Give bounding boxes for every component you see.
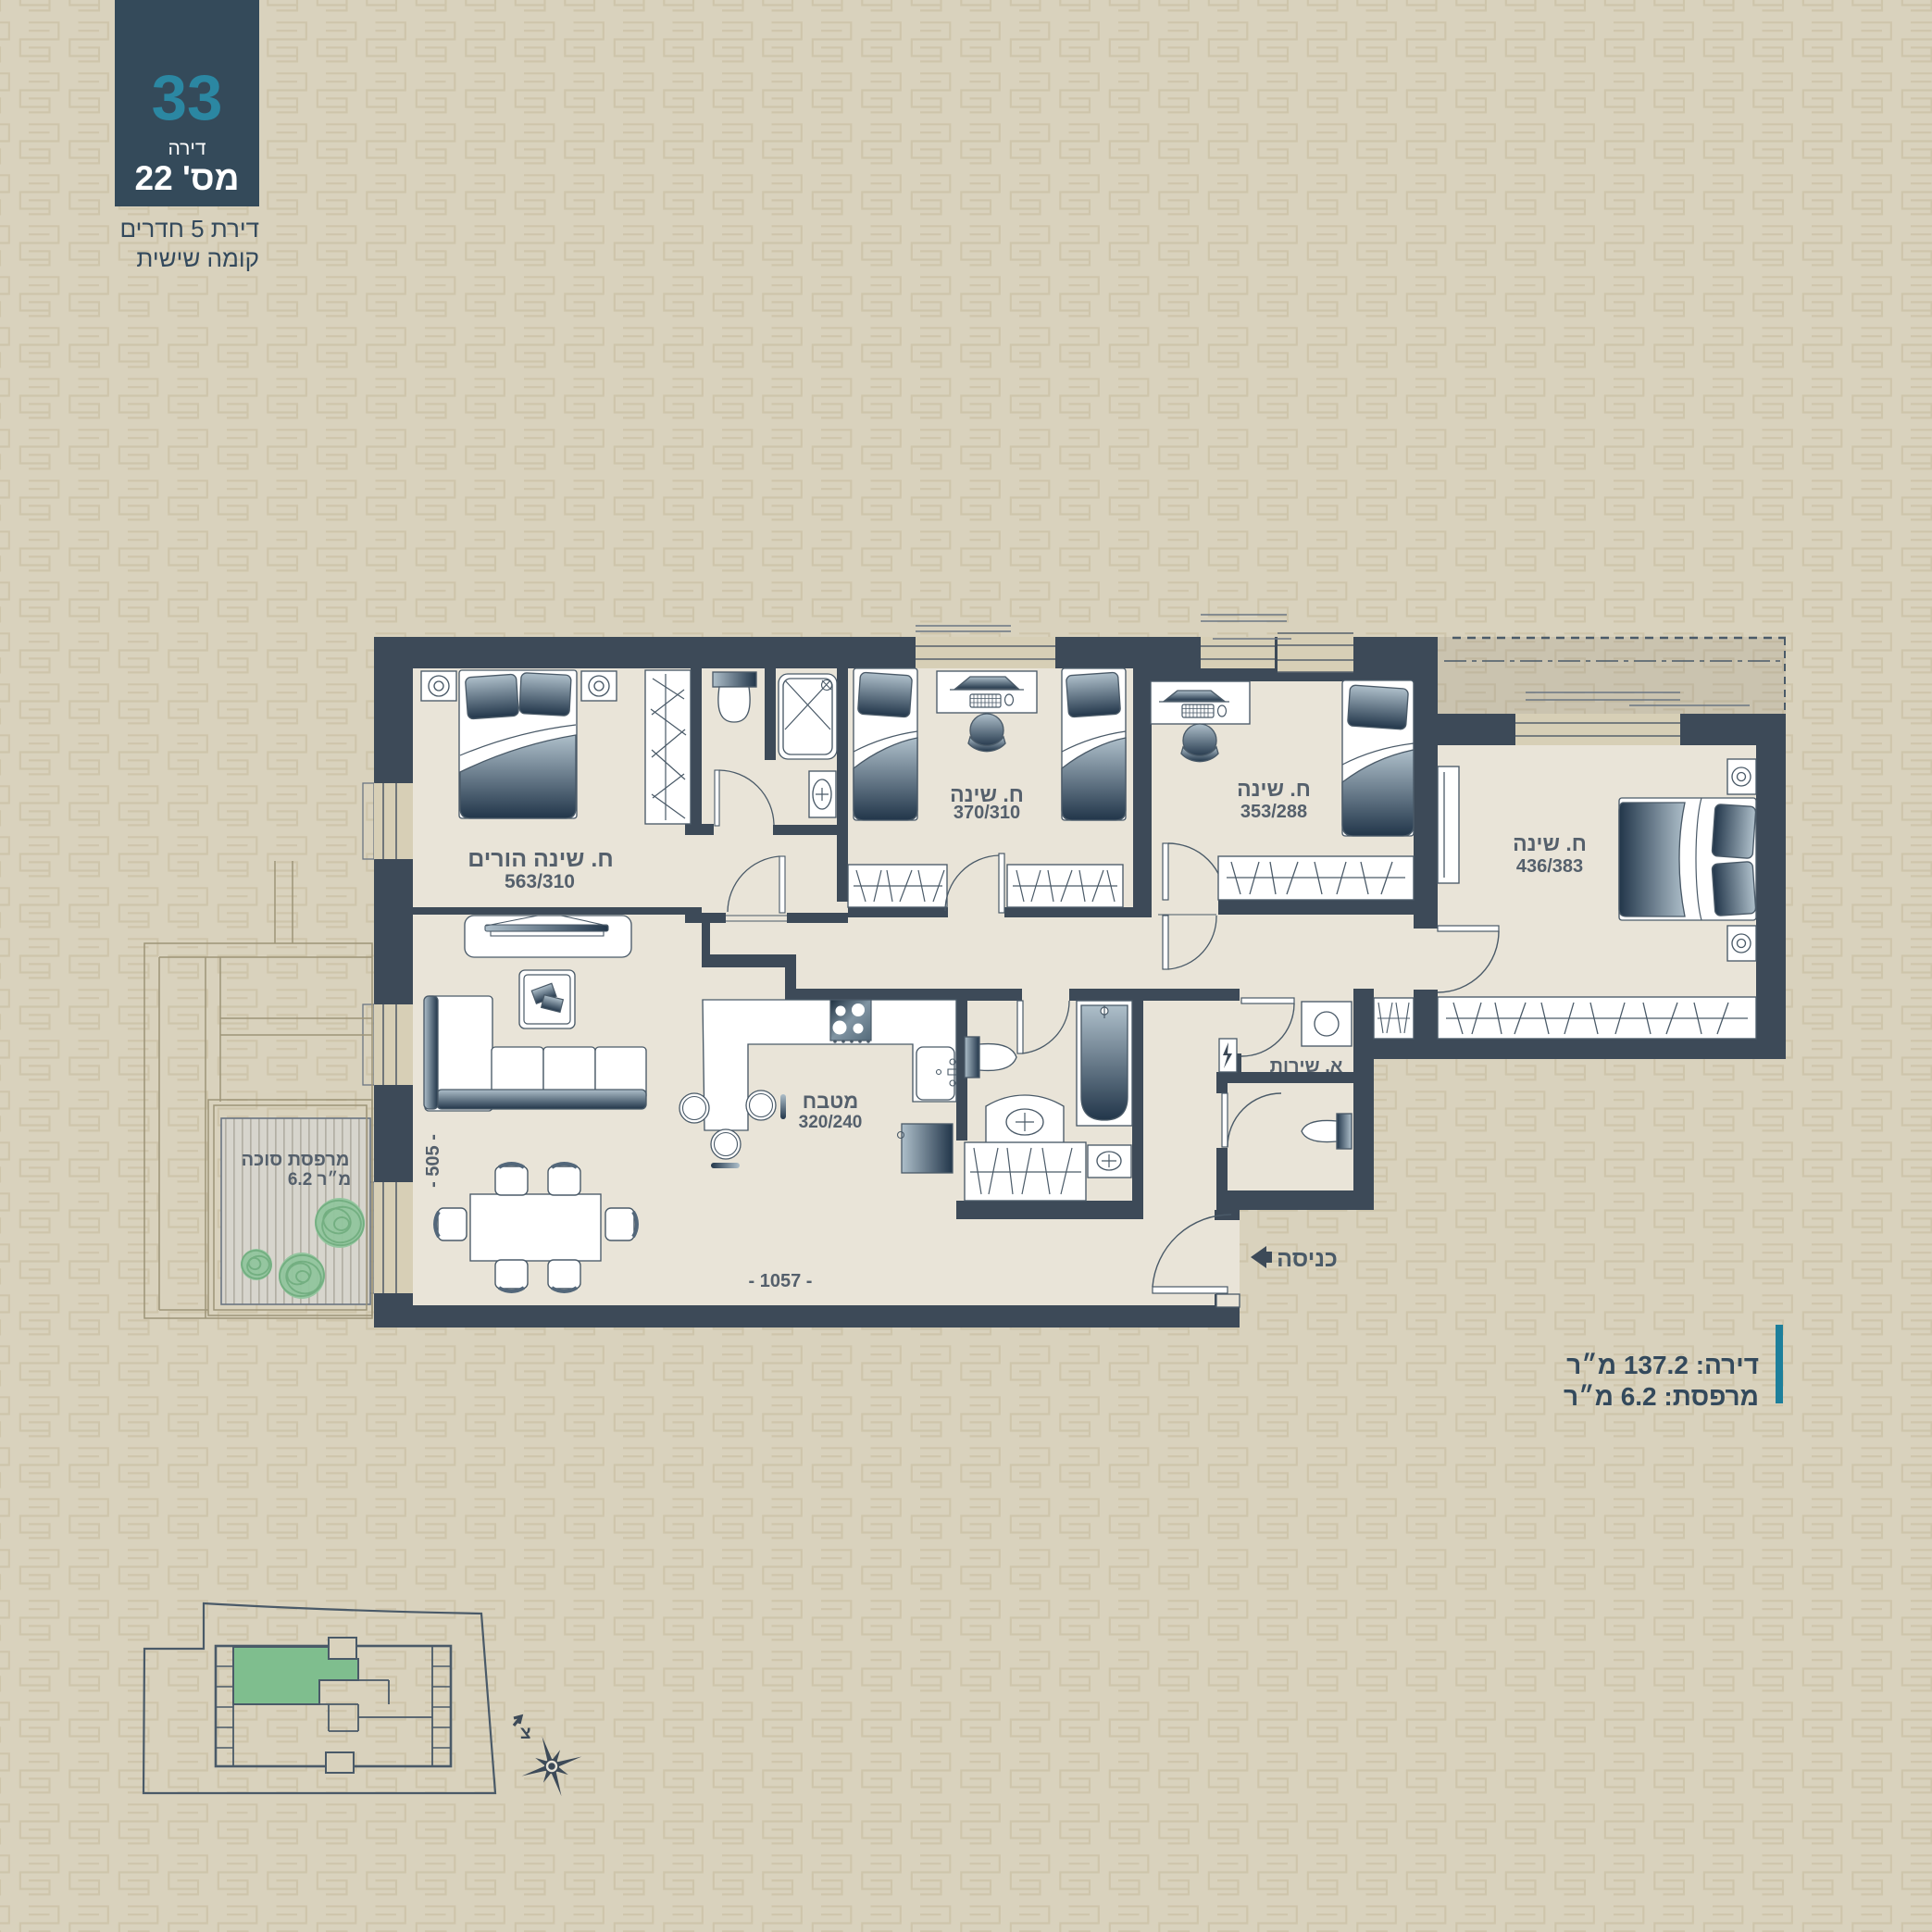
svg-text:- 505 -: - 505 - [423,1134,443,1188]
svg-text:א. שירות: א. שירות [1270,1056,1343,1077]
svg-text:ח. שינה: ח. שינה [1237,777,1311,801]
svg-text:מרפסת סוכה: מרפסת סוכה [242,1150,350,1170]
svg-text:- 1057 -: - 1057 - [749,1271,813,1291]
svg-text:33: 33 [152,62,223,133]
svg-text:צ: צ [520,1724,531,1743]
svg-text:דירה: 137.2 מ״ר: דירה: 137.2 מ״ר [1566,1351,1759,1379]
svg-text:ח. שינה: ח. שינה [1513,831,1587,855]
svg-text:436/383: 436/383 [1516,856,1583,877]
svg-text:דירת 5 חדרים: דירת 5 חדרים [120,215,259,243]
svg-text:6.2 מ״ר: 6.2 מ״ר [288,1170,351,1190]
svg-text:320/240: 320/240 [799,1113,863,1132]
svg-text:353/288: 353/288 [1240,802,1307,822]
svg-text:כניסה: כניסה [1277,1246,1338,1272]
svg-text:ח. שינה הורים: ח. שינה הורים [467,846,614,872]
svg-text:דירה: דירה [168,138,206,159]
svg-text:370/310: 370/310 [954,803,1020,823]
svg-text:מרפסת: 6.2 מ״ר: מרפסת: 6.2 מ״ר [1564,1382,1759,1411]
svg-text:מטבח: מטבח [803,1090,859,1113]
svg-text:563/310: 563/310 [505,871,575,892]
svg-text:מס' 22: מס' 22 [135,159,240,197]
svg-text:קומה שישית: קומה שישית [136,244,259,272]
